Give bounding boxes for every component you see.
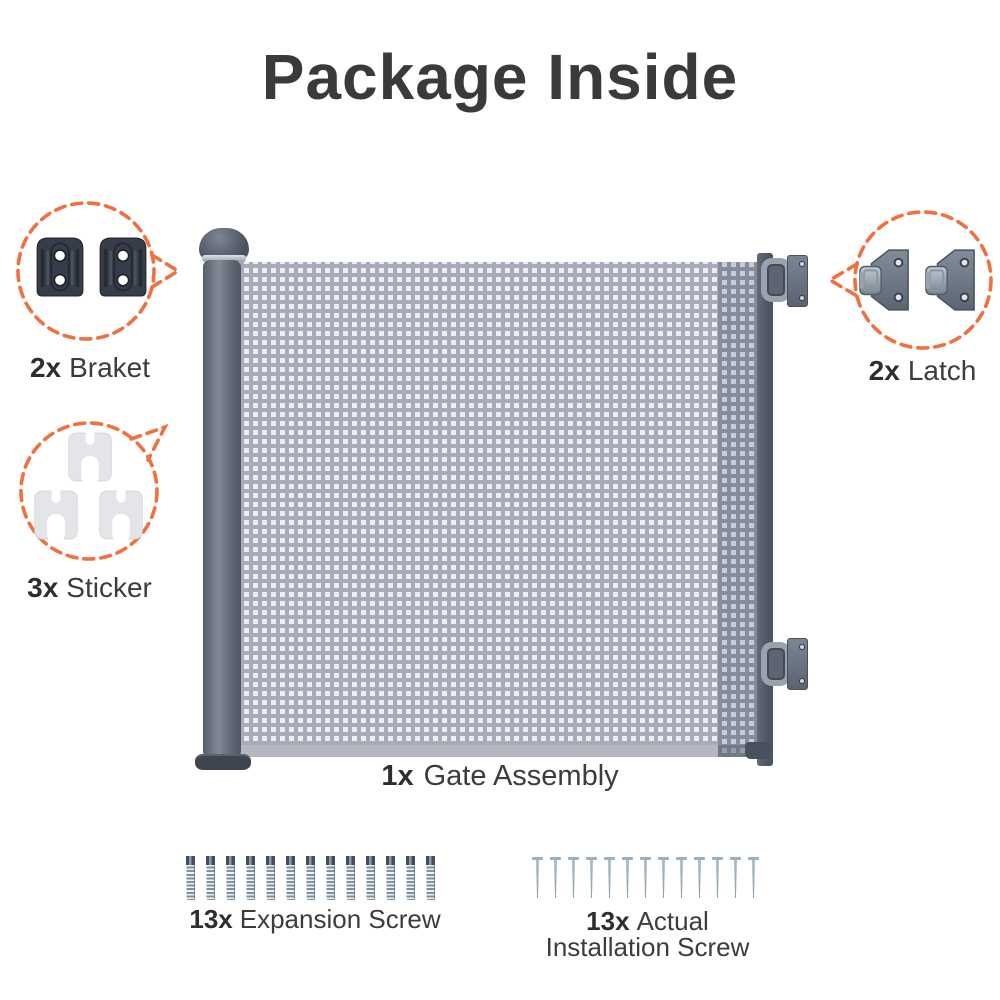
expansion-screw-icon [266,856,275,900]
expansion-screw-icon [226,856,235,900]
expansion-screw-icon [406,856,415,900]
sticker-icon [33,487,79,543]
expansion-screw-name: Expansion Screw [240,904,441,934]
installation-screw-icon [640,857,651,898]
expansion-screw-row [186,856,435,900]
latch-label: 2xLatch [845,355,1000,387]
latch-qty: 2x [869,355,900,386]
installation-screw-icon [694,857,705,898]
installation-screw-icon [604,857,615,898]
gate-assembly-image [195,228,815,774]
screw-dot-icon [799,678,805,684]
latch-icon [924,246,978,314]
page-title: Package Inside [0,40,1000,114]
installation-screw-icon [658,857,669,898]
gate-roller-pole [203,260,241,758]
latch-items [858,246,978,314]
expansion-screw-icon [306,856,315,900]
installation-screw-icon [676,857,687,898]
expansion-screw-icon [366,856,375,900]
installation-screw-label: 13xActual Installation Screw [520,908,775,960]
latch-icon [858,246,912,314]
screw-dot-icon [799,644,805,650]
gate-right-bar [757,253,773,766]
gate-mesh-hem [240,745,757,757]
latch-name: Latch [908,355,977,386]
expansion-screw-icon [246,856,255,900]
expansion-screw-icon [326,856,335,900]
installation-screw-line1: 13xActual [520,908,775,934]
latch-plate-icon [787,638,808,690]
installation-screw-icon [730,857,741,898]
callout-tail-left [830,264,857,296]
expansion-screw-qty: 13x [189,904,232,934]
bracket-label: 2xBraket [10,352,170,384]
sticker-items [21,421,160,560]
bracket-name: Braket [69,352,150,383]
installation-screw-row [532,857,759,898]
installation-screw-line2: Installation Screw [520,934,775,960]
gate-qty: 1x [381,760,413,792]
sticker-name: Sticker [66,572,152,603]
installation-screw-icon [748,857,759,898]
package-inside-graphic: Package Inside 2xBraket 3xSticker 2xLatc… [0,0,1000,1000]
sticker-qty: 3x [27,572,58,603]
installation-screw-icon [712,857,723,898]
expansion-screw-icon [386,856,395,900]
sticker-icon [67,429,113,485]
expansion-screw-icon [206,856,215,900]
installation-screw-icon [550,857,561,898]
gate-mesh [240,262,718,745]
bracket-icon [95,234,151,300]
gate-name: Gate Assembly [424,760,619,792]
latch-plate-icon [787,255,808,307]
installation-screw-icon [532,857,543,898]
callout-tail-right [152,255,178,287]
bracket-qty: 2x [30,352,61,383]
sticker-label: 3xSticker [12,572,167,604]
screw-dot-icon [799,295,805,301]
expansion-screw-icon [426,856,435,900]
bracket-items [32,234,151,300]
installation-screw-icon [586,857,597,898]
installation-screw-icon [622,857,633,898]
gate-label: 1xGate Assembly [0,760,1000,793]
expansion-screw-icon [346,856,355,900]
expansion-screw-label: 13xExpansion Screw [160,906,470,932]
installation-screw-icon [568,857,579,898]
screw-dot-icon [799,261,805,267]
expansion-screw-icon [186,856,195,900]
gate-bar-foot [745,742,771,759]
expansion-screw-icon [286,856,295,900]
sticker-icon [98,487,144,543]
gate-mesh-rolled-edge [718,262,757,757]
bracket-icon [32,234,88,300]
